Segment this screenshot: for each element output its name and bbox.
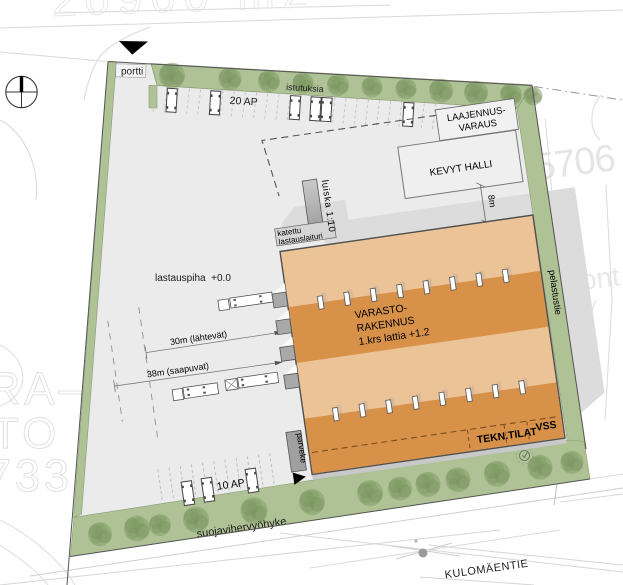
svg-text:8m: 8m [486,194,498,208]
svg-text:lastauspiha +0.0: lastauspiha +0.0 [155,273,231,284]
svg-text:733: 733 [0,450,73,501]
svg-text:portti: portti [121,67,143,78]
svg-text:RA–: RA– [0,363,88,414]
svg-text:20 AP: 20 AP [229,95,258,109]
svg-text:KULOMÄENTIE: KULOMÄENTIE [444,558,529,582]
svg-text:istutuksia: istutuksia [286,82,324,94]
svg-text:20900 m2: 20900 m2 [51,0,317,26]
